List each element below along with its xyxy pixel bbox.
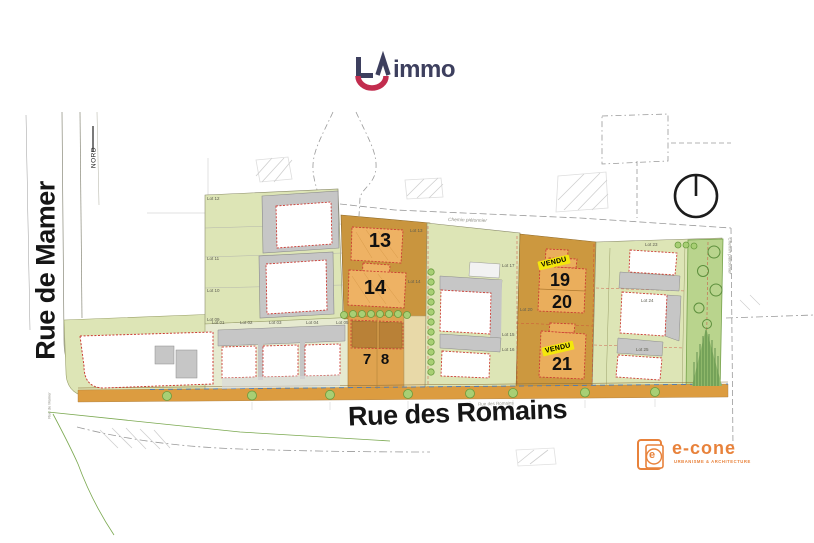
lot-label: Lot 11 <box>207 256 219 261</box>
compass-icon <box>675 175 717 217</box>
building-left-parcel <box>80 332 213 388</box>
lot-label: Lot 15 <box>502 332 515 337</box>
lot-label: Lot 24 <box>641 298 654 303</box>
econe-icon-letter: e <box>649 449 655 461</box>
buildings-bottom-row <box>218 325 345 389</box>
lot-label: Lot 05 <box>336 320 349 325</box>
lot-label: Lot 13 <box>410 228 423 233</box>
lot-label: Lot 16 <box>502 347 515 352</box>
lot-label: Lot 12 <box>207 196 220 201</box>
lot-label: Lot 20 <box>520 307 533 312</box>
lot-label: Lot 25 <box>636 347 649 352</box>
unit-number-7[interactable]: 7 <box>359 352 375 367</box>
econe-wordmark: e-cone <box>672 438 736 459</box>
unit-number-20[interactable]: 20 <box>547 293 577 311</box>
path-label-right: Chemin piétonnier <box>728 238 733 300</box>
street-label-rue-de-mamer-small: Rue de Mamer <box>47 381 52 431</box>
unit-number-19[interactable]: 19 <box>545 271 575 289</box>
lot-label: Lot 10 <box>207 288 220 293</box>
unit-number-13[interactable]: 13 <box>365 231 395 251</box>
street-label-rue-de-mamer: Rue de Mamer <box>31 141 62 401</box>
unit-number-21[interactable]: 21 <box>547 355 577 373</box>
la-immo-logo: immo <box>352 50 472 94</box>
econe-tagline: URBANISME & ARCHITECTURE <box>674 459 751 464</box>
lot-label: Lot 14 <box>408 279 421 284</box>
unit-number-8[interactable]: 8 <box>377 352 393 367</box>
lot-label: Lot 23 <box>645 242 658 247</box>
lot-label: Lot 02 <box>240 320 253 325</box>
unit-number-14[interactable]: 14 <box>360 278 390 298</box>
north-label: NORD <box>91 143 98 173</box>
lot-label: Lot 03 <box>269 320 282 325</box>
logo-wordmark: immo <box>393 56 455 84</box>
lot-label: Lot 04 <box>306 320 319 325</box>
site-plan-page: immo Rue de Mamer Rue des Romains Rue de… <box>0 0 814 543</box>
la-immo-logo-mark <box>352 50 396 94</box>
lot-label: Lot 01 <box>212 320 225 325</box>
lot-label: Lot 17 <box>502 263 515 268</box>
